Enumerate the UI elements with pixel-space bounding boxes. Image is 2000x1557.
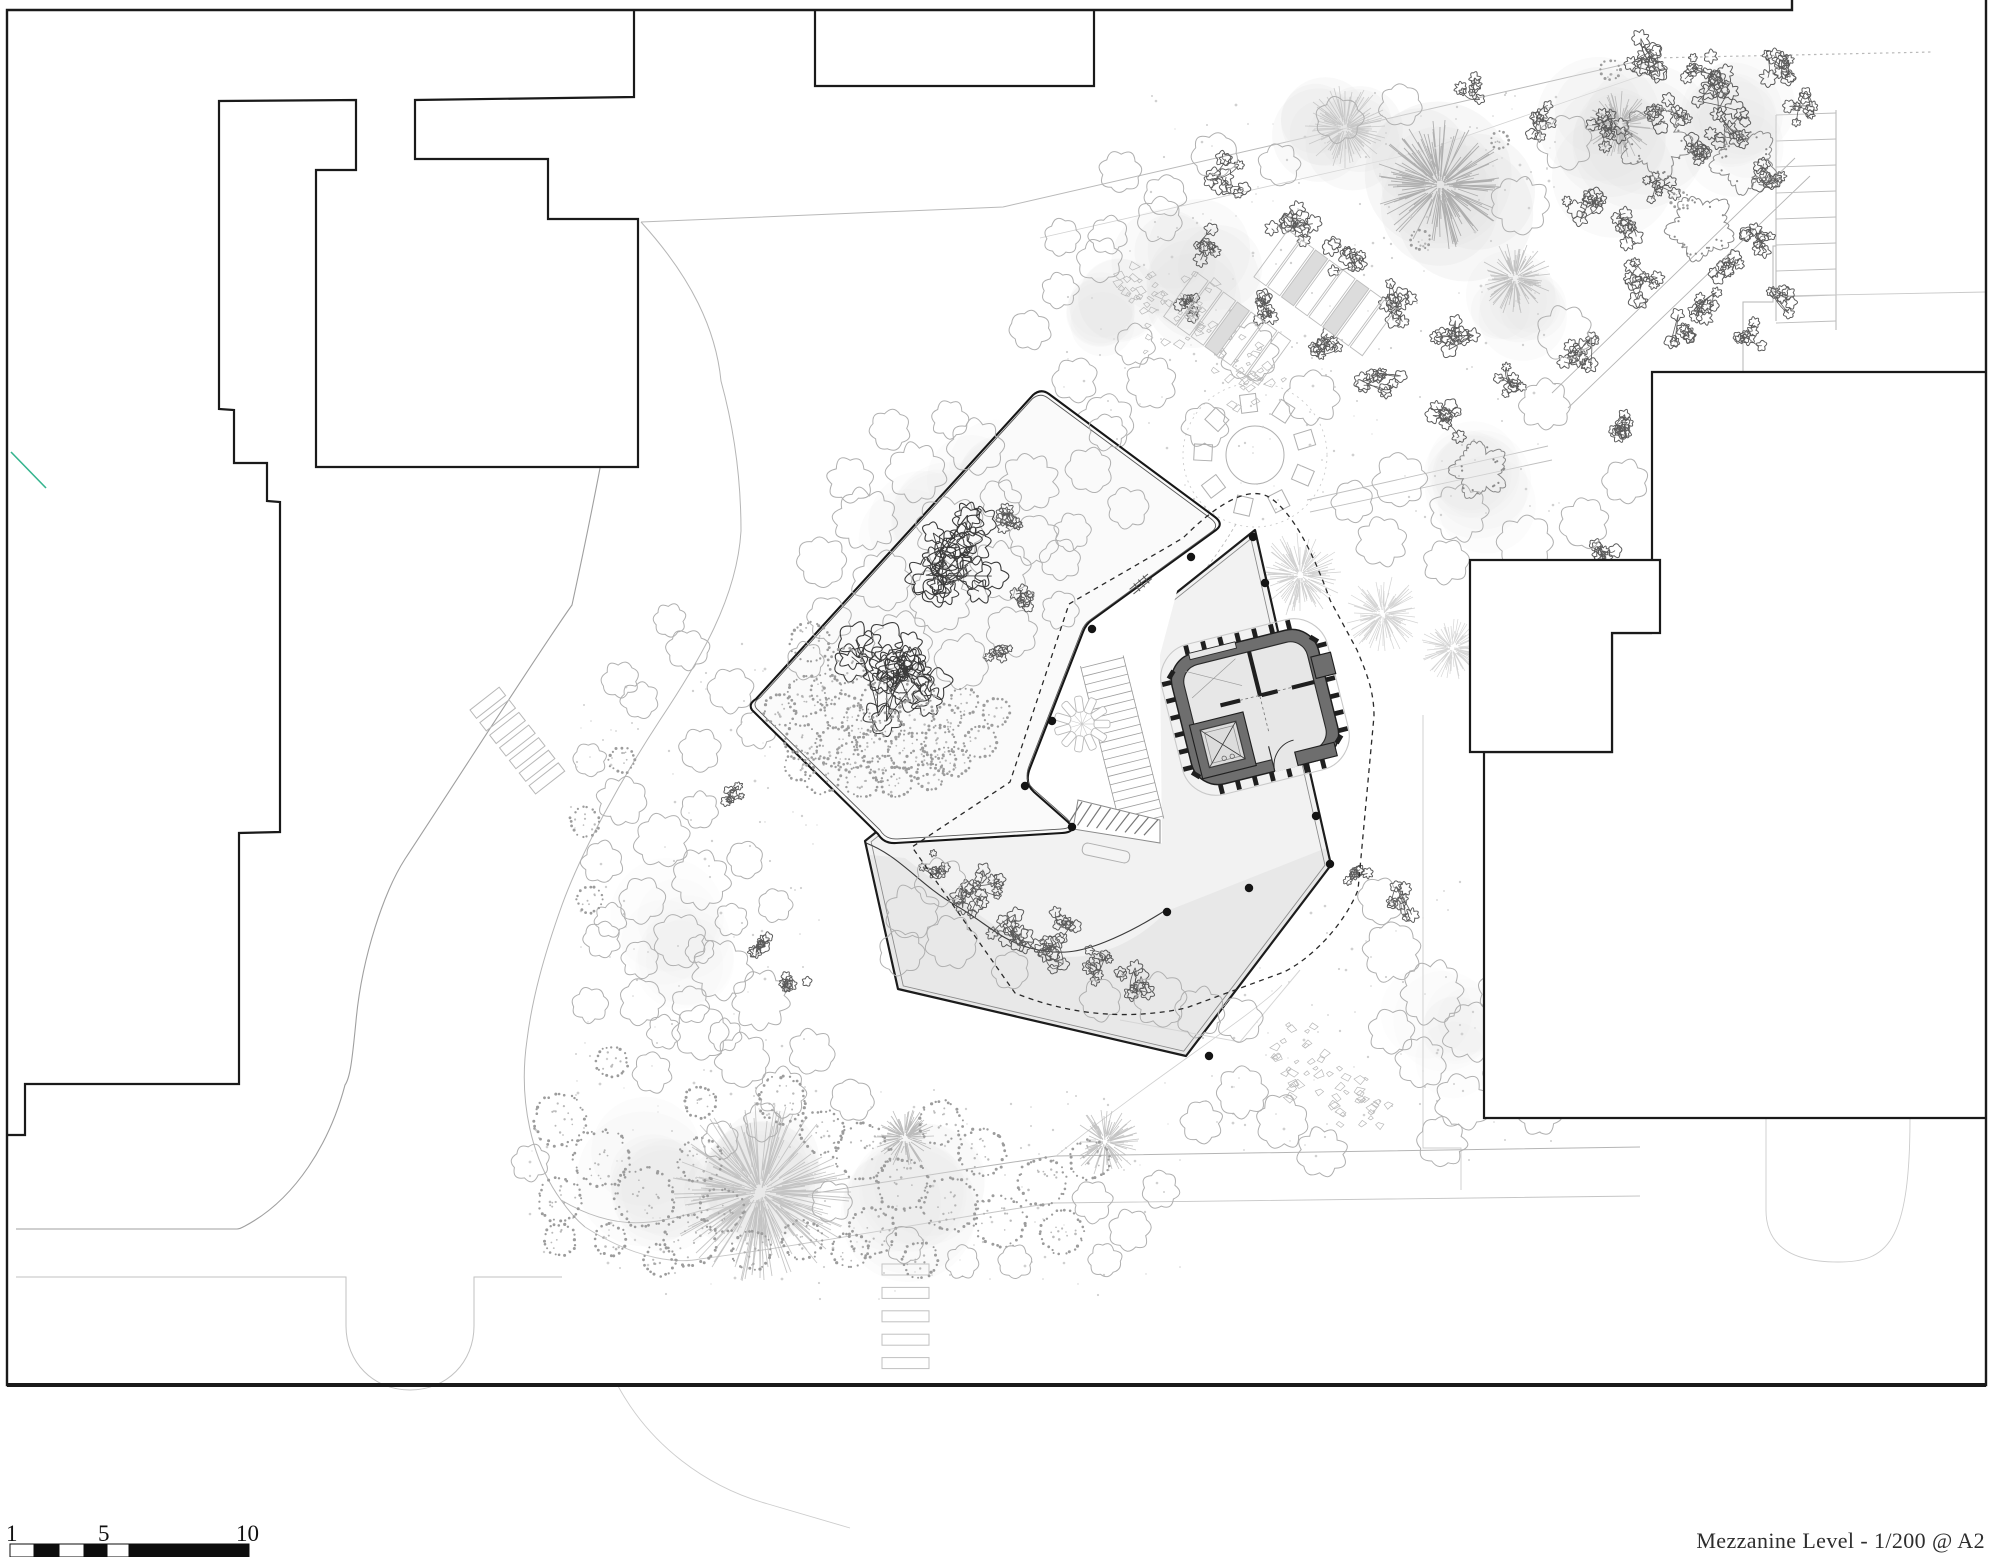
svg-text:Mezzanine Level - 1/200 @ A2: Mezzanine Level - 1/200 @ A2 [1696,1528,1985,1553]
svg-text:5: 5 [98,1521,110,1546]
svg-text:1: 1 [6,1521,18,1546]
svg-text:10: 10 [236,1521,259,1546]
